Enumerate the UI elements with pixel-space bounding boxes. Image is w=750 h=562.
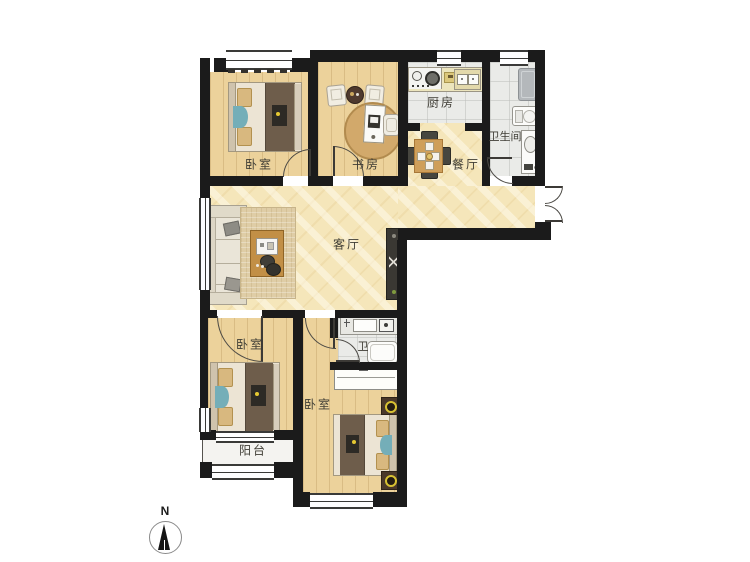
floor-plan: 卧室 书房 厨房 卫生间 餐厅 客厅 卧室 卫 卧室 阳台 N bbox=[0, 0, 750, 562]
bay-window bbox=[226, 50, 292, 70]
wall bbox=[482, 176, 487, 186]
burner-icon bbox=[412, 71, 422, 81]
bed-pillow bbox=[237, 88, 252, 107]
bed-throw bbox=[272, 105, 288, 125]
wall bbox=[262, 310, 305, 318]
bathroom-counter bbox=[340, 316, 398, 335]
bed-bench bbox=[273, 364, 279, 429]
bed-cushion bbox=[215, 386, 229, 408]
entrance-door-arc bbox=[545, 186, 563, 204]
stove bbox=[409, 68, 442, 89]
bed-throw bbox=[251, 385, 266, 405]
bed-pillow bbox=[218, 407, 232, 426]
sofa-pillow bbox=[223, 220, 241, 236]
side-table bbox=[346, 86, 364, 104]
wardrobe-rod bbox=[337, 377, 395, 378]
bed-pillow bbox=[376, 420, 389, 437]
wall bbox=[200, 176, 283, 186]
bedroom-window bbox=[199, 408, 211, 432]
wall bbox=[398, 50, 408, 186]
burner-icon bbox=[425, 71, 440, 86]
plant-icon bbox=[392, 290, 396, 294]
coffee-table bbox=[250, 230, 284, 277]
wall bbox=[528, 50, 545, 62]
tray bbox=[256, 238, 278, 255]
door-arc-bathroom-main bbox=[487, 158, 513, 184]
wall bbox=[310, 50, 408, 62]
bed-pillow bbox=[218, 368, 232, 387]
laptop-icon bbox=[368, 115, 381, 129]
bedroom-bottom-window bbox=[310, 493, 373, 509]
room-label-bedroom-bottom: 卧室 bbox=[304, 396, 332, 413]
sink-basin bbox=[353, 319, 377, 332]
room-label-bathroom-small: 卫 bbox=[358, 338, 369, 354]
wall bbox=[200, 310, 217, 318]
bed-pillow bbox=[237, 127, 252, 146]
wall bbox=[335, 310, 398, 318]
lamp-icon bbox=[385, 475, 397, 487]
kitchen-counter bbox=[408, 67, 483, 92]
wall bbox=[465, 123, 490, 131]
wall bbox=[461, 50, 490, 62]
wall bbox=[330, 362, 398, 370]
compass: N bbox=[144, 504, 186, 556]
room-label-living: 客厅 bbox=[333, 236, 361, 253]
wall bbox=[397, 240, 407, 507]
bay-window-ledge bbox=[228, 69, 290, 73]
wall bbox=[200, 462, 212, 478]
bed-double bbox=[228, 82, 302, 152]
bathroom-window bbox=[500, 50, 528, 66]
sink bbox=[454, 69, 481, 90]
room-label-dining: 餐厅 bbox=[452, 156, 480, 173]
wall bbox=[363, 176, 408, 186]
dining-table bbox=[414, 139, 443, 173]
wall bbox=[293, 318, 303, 507]
wall bbox=[200, 318, 208, 408]
sink-basin bbox=[457, 74, 468, 85]
wall bbox=[512, 176, 545, 186]
wall bbox=[535, 62, 545, 186]
balcony-window bbox=[212, 464, 274, 480]
dining-set bbox=[405, 131, 451, 179]
bed-throw bbox=[346, 435, 360, 453]
lamp-icon bbox=[385, 401, 397, 413]
wall bbox=[373, 492, 407, 507]
bed-pillow bbox=[376, 453, 389, 470]
wall bbox=[274, 430, 303, 440]
floor-hall bbox=[398, 186, 535, 228]
faucet-icon bbox=[344, 319, 350, 330]
room-label-kitchen: 厨房 bbox=[427, 94, 455, 111]
room-label-balcony: 阳台 bbox=[239, 442, 267, 459]
pouf bbox=[266, 263, 281, 276]
room-label-bathroom-main: 卫生间 bbox=[489, 128, 522, 144]
armchair bbox=[326, 84, 347, 107]
room-label-bedroom-lower-left: 卧室 bbox=[236, 336, 264, 353]
wall bbox=[490, 50, 500, 62]
sink-basin bbox=[468, 74, 479, 85]
kitchen-window bbox=[437, 50, 461, 66]
living-room-window bbox=[199, 198, 211, 290]
wall bbox=[408, 50, 437, 62]
room-label-study: 书房 bbox=[352, 156, 380, 173]
bed-cushion bbox=[233, 106, 247, 128]
bed-double bbox=[333, 414, 397, 476]
bed-cushion bbox=[380, 435, 392, 454]
wall bbox=[308, 176, 333, 186]
room-label-bedroom-top-left: 卧室 bbox=[245, 156, 273, 173]
bed-double bbox=[210, 362, 280, 432]
wall bbox=[400, 123, 420, 131]
bed-bench bbox=[294, 84, 301, 149]
wall bbox=[274, 462, 303, 478]
washer-icon bbox=[379, 319, 394, 332]
wall bbox=[398, 228, 551, 240]
compass-north-label: N bbox=[161, 504, 170, 518]
wall bbox=[293, 492, 310, 507]
bathtub bbox=[367, 341, 398, 364]
